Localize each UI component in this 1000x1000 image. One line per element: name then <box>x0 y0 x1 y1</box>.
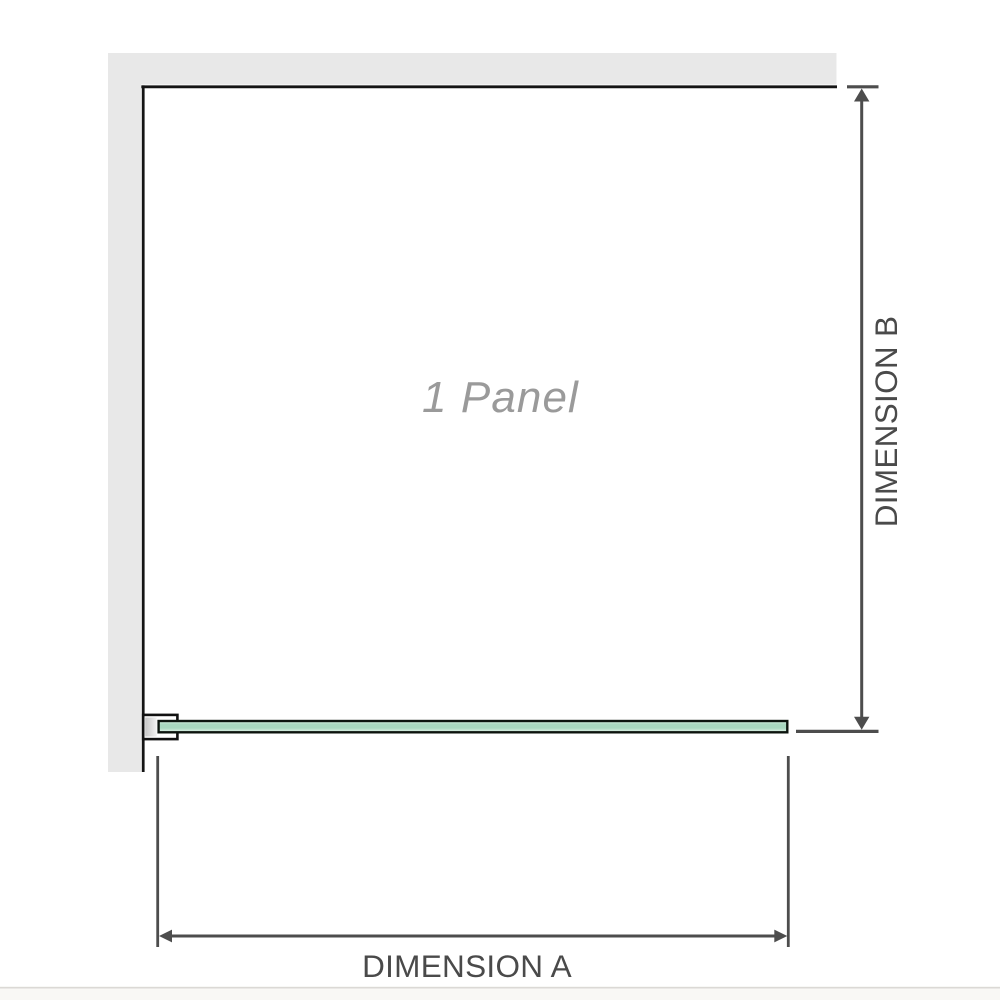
svg-text:1 Panel: 1 Panel <box>422 373 579 422</box>
svg-text:DIMENSION B: DIMENSION B <box>868 316 904 528</box>
svg-text:DIMENSION A: DIMENSION A <box>362 948 572 984</box>
